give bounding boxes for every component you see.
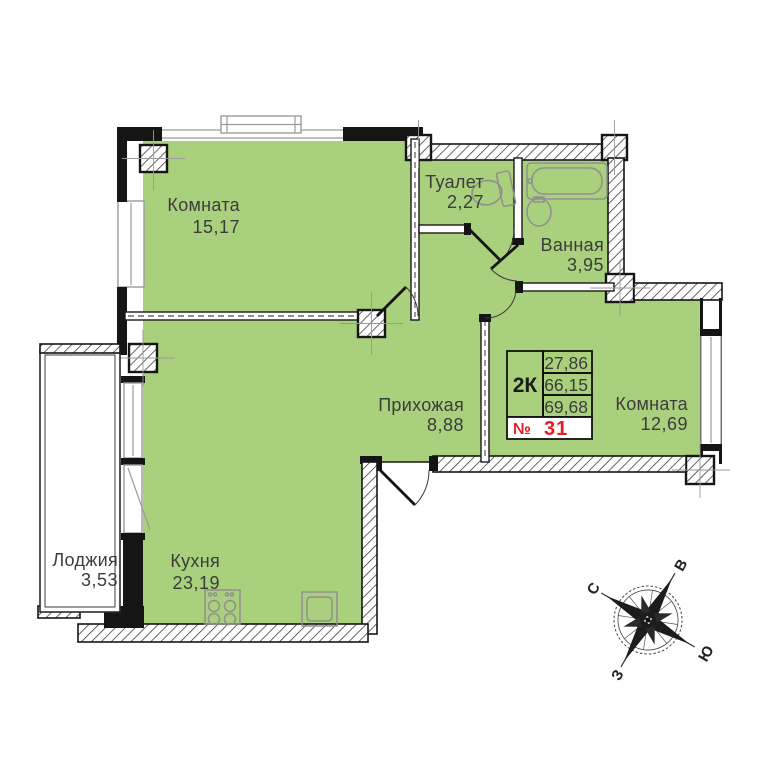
room-area: 3,95 [567, 255, 604, 275]
room-label: Туалет [425, 172, 484, 192]
window-icon [701, 335, 721, 445]
apartment-number: 31 [544, 418, 568, 440]
room-label: Комната [615, 394, 688, 414]
room-area: 3,53 [81, 570, 118, 590]
apartment-number-sign: № [513, 421, 531, 438]
window-icon [118, 201, 144, 287]
window-icon [124, 383, 142, 458]
compass-south: Ю [695, 643, 717, 665]
info-value-3: 69,68 [544, 397, 588, 417]
info-value-2: 66,15 [544, 375, 588, 395]
compass-west: З [608, 667, 627, 684]
room-label: Кухня [170, 551, 220, 571]
info-value-1: 27,86 [544, 353, 588, 373]
room-label: Прихожая [378, 395, 464, 415]
compass-east: В [671, 556, 691, 574]
room-area: 15,17 [192, 217, 240, 237]
floor-plan: 2К 27,86 66,15 69,68 № 31 Комната 15,17 … [0, 0, 768, 768]
room-label: Ванная [541, 235, 604, 255]
apartment-type: 2К [513, 374, 538, 397]
window-icon [221, 116, 301, 133]
room-area: 8,88 [427, 415, 464, 435]
compass-north: С [584, 580, 604, 598]
room-area: 2,27 [447, 192, 484, 212]
room-label: Лоджия [52, 550, 118, 570]
compass-rose: С В Ю З [553, 524, 749, 716]
room-label: Комната [167, 195, 240, 215]
room-area: 12,69 [640, 414, 688, 434]
room-area: 23,19 [172, 573, 220, 593]
